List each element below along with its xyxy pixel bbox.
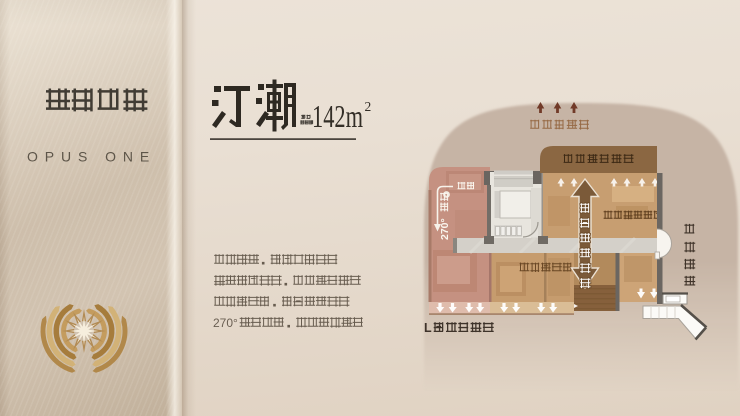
svg-text:270°: 270° — [439, 218, 451, 240]
svg-text:L: L — [424, 321, 432, 335]
